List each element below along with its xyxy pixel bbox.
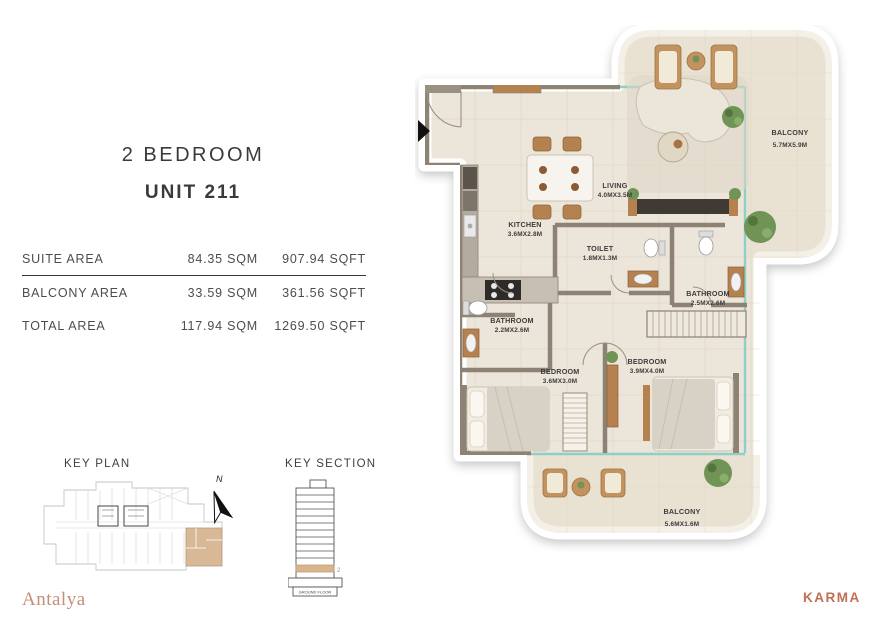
bedroom-first-dims: 3.6MX3.0M <box>543 378 577 385</box>
key-section-heading: KEY SECTION <box>285 458 376 470</box>
kitchen-dims: 3.6MX2.8M <box>508 231 542 238</box>
bathroom-second-dims: 2.2MX2.6M <box>495 327 529 334</box>
key-plan-highlighted-unit <box>186 528 222 566</box>
balcony-main-dims: 5.7MX5.9M <box>773 142 807 149</box>
north-label: N <box>216 474 223 484</box>
floor-plan-drawing: KITCHEN 3.6MX2.8M LIVING 4.0MX3.5M TOILE… <box>415 25 874 575</box>
balcony-area-sqft: 361.56 SQFT <box>258 286 366 300</box>
key-section-highlighted-floor <box>296 565 334 572</box>
bedroom-master-label: BEDROOM <box>628 357 667 366</box>
table-row-balcony: BALCONY AREA 33.59 SQM 361.56 SQFT <box>22 276 366 309</box>
balcony-main-label: BALCONY <box>772 128 809 137</box>
page-title: 2 BEDROOM <box>118 144 268 167</box>
table-row-total: TOTAL AREA 117.94 SQM 1269.50 SQFT <box>22 309 366 342</box>
bathroom-second-label: BATHROOM <box>490 316 533 325</box>
area-table: SUITE AREA 84.35 SQM 907.94 SQFT BALCONY… <box>22 242 366 342</box>
key-plan-heading: KEY PLAN <box>64 458 130 470</box>
wardrobe <box>647 311 746 337</box>
total-area-label: TOTAL AREA <box>22 319 150 333</box>
unit-number: UNIT 211 <box>118 182 268 204</box>
table-row-suite: SUITE AREA 84.35 SQM 907.94 SQFT <box>22 242 366 275</box>
balcony-area-sqm: 33.59 SQM <box>150 286 258 300</box>
key-section-level: 2 <box>337 568 341 574</box>
unit-title-block: 2 BEDROOM UNIT 211 <box>118 144 268 204</box>
key-plan-drawing: N <box>36 470 250 578</box>
bedroom-master-dims: 3.9MX4.0M <box>630 368 664 375</box>
bathroom-main-dims: 2.5MX2.6M <box>691 300 725 307</box>
antalya-logo: Antalya <box>22 589 86 611</box>
key-section-drawing: 2 GROUND FLOOR <box>288 472 350 600</box>
living-label: LIVING <box>602 181 627 190</box>
total-area-sqft: 1269.50 SQFT <box>258 319 366 333</box>
karma-logo: KARMA <box>803 590 861 605</box>
toilet-dims: 1.8MX1.3M <box>583 255 617 262</box>
living-dims: 4.0MX3.5M <box>598 192 632 199</box>
floorplan-sheet: 2 BEDROOM UNIT 211 SUITE AREA 84.35 SQM … <box>0 0 874 619</box>
balcony-second-label: BALCONY <box>664 507 701 516</box>
kitchen-label: KITCHEN <box>508 220 541 229</box>
suite-area-sqft: 907.94 SQFT <box>258 252 366 266</box>
total-area-sqm: 117.94 SQM <box>150 319 258 333</box>
suite-area-sqm: 84.35 SQM <box>150 252 258 266</box>
toilet-label: TOILET <box>587 244 614 253</box>
bathroom-main-label: BATHROOM <box>686 289 729 298</box>
bedroom-first-label: BEDROOM <box>541 367 580 376</box>
balcony-second-dims: 5.6MX1.6M <box>665 521 699 528</box>
ground-floor-label: GROUND FLOOR <box>299 590 332 595</box>
balcony-area-label: BALCONY AREA <box>22 286 150 300</box>
bedroom-master-bed <box>643 373 739 453</box>
bedroom-first-bed <box>461 385 549 453</box>
suite-area-label: SUITE AREA <box>22 252 150 266</box>
north-arrow-icon <box>205 488 231 522</box>
key-section-tower <box>296 480 334 578</box>
